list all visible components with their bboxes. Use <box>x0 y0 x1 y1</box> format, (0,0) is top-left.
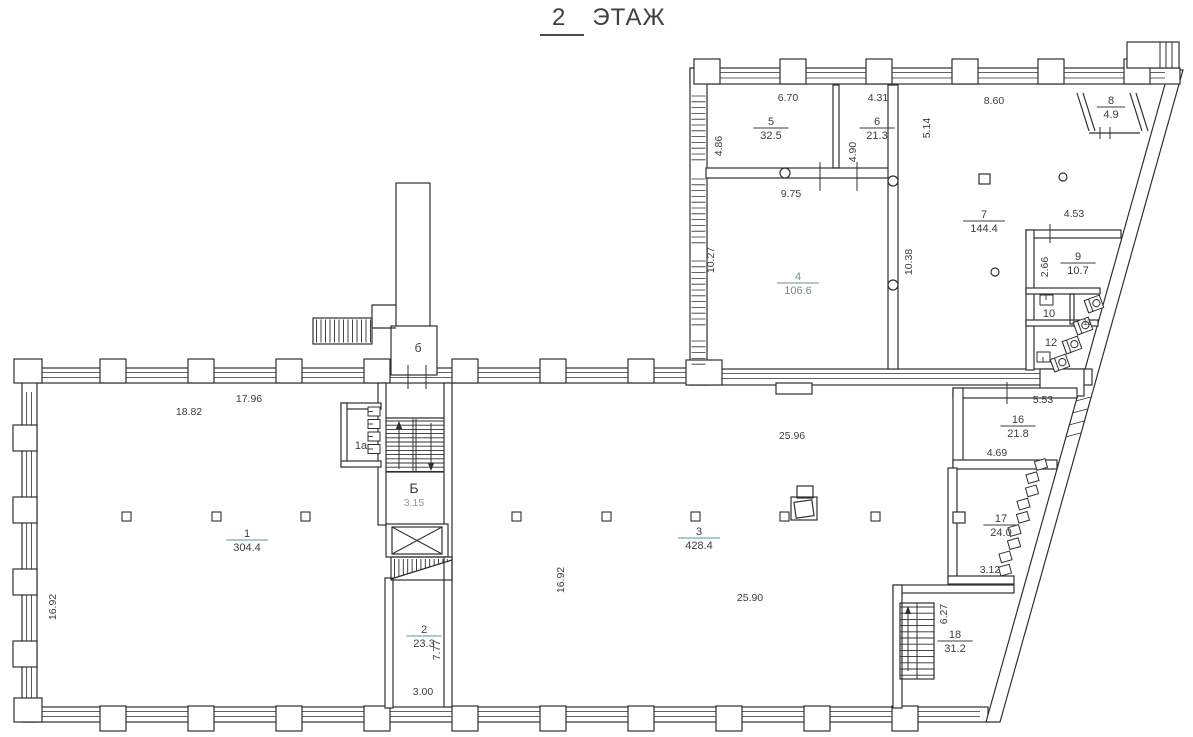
wall-left <box>22 368 37 722</box>
wall-stub <box>953 512 965 523</box>
dimension-label: 4.31 <box>868 92 889 104</box>
wall-left-upper-block <box>690 68 707 385</box>
column-marker <box>780 512 789 521</box>
svg-text:6: 6 <box>874 116 880 128</box>
dimension-label: 4.90 <box>847 142 859 163</box>
column-marker <box>512 512 521 521</box>
dimension-label: 3.12 <box>980 564 1001 576</box>
dimension-label: 16.92 <box>555 567 567 593</box>
svg-text:21.3: 21.3 <box>866 130 887 142</box>
wall-room17-south <box>948 576 1014 584</box>
wall-bottom <box>22 707 988 722</box>
radiator-box <box>1026 472 1039 484</box>
radiator-box <box>999 551 1012 563</box>
column-marker <box>602 512 611 521</box>
zone-label-11: 11 <box>1083 318 1092 327</box>
dimension-label: 25.90 <box>737 592 763 604</box>
room-label-18: 1831.2 <box>937 629 972 655</box>
radiator-box <box>1025 485 1038 497</box>
wall-room9-10 <box>1026 288 1100 294</box>
dimension-label: 7.77 <box>431 640 443 661</box>
roof-block-top-right <box>1127 42 1179 68</box>
dimension-label: 3.00 <box>413 686 434 698</box>
zone-label-Б: Б <box>409 480 418 496</box>
shaft-above-b <box>396 183 430 328</box>
svg-text:24.0: 24.0 <box>990 527 1011 539</box>
floor-plan-drawing: 1304.4223.33428.44106.6532.5621.37144.48… <box>0 0 1193 737</box>
wall-bottom-upper-block <box>690 369 1092 385</box>
radiator-box <box>1016 511 1029 523</box>
dimension-label: 6.27 <box>938 604 950 625</box>
svg-text:10.7: 10.7 <box>1067 265 1088 277</box>
wall-column-circle <box>888 280 898 290</box>
dimension-label: 25.96 <box>779 430 805 442</box>
svg-text:144.4: 144.4 <box>970 223 998 235</box>
floor-plan-page: 2 ЭТАЖ <box>0 0 1193 737</box>
svg-text:21.8: 21.8 <box>1007 428 1028 440</box>
zone-label-10: 10 <box>1043 308 1055 320</box>
room-label-4: 4106.6 <box>777 271 819 297</box>
svg-text:4: 4 <box>795 271 801 283</box>
column-square <box>979 174 990 184</box>
duct-room3 <box>791 486 817 520</box>
dimension-label: 5.53 <box>1033 394 1054 406</box>
toilet-icon <box>1084 295 1103 313</box>
radiator-box <box>1007 538 1020 550</box>
room-label-9: 910.7 <box>1060 251 1095 277</box>
wall-room5-6-south <box>706 168 896 178</box>
dimension-label: 4.53 <box>1064 208 1085 220</box>
room-label-16: 1621.8 <box>1000 414 1035 440</box>
wall-1a-west <box>341 403 347 467</box>
svg-text:3: 3 <box>696 526 702 538</box>
zone-label-б: б <box>415 341 422 355</box>
wall-room18-north <box>893 585 1014 593</box>
svg-text:17: 17 <box>995 513 1007 525</box>
room-label-8: 84.9 <box>1097 95 1125 121</box>
dimension-label: 4.86 <box>713 136 725 157</box>
dimension-label: 3.15 <box>404 497 425 509</box>
svg-text:4.9: 4.9 <box>1103 109 1118 121</box>
svg-text:1: 1 <box>244 528 250 540</box>
zone-label-1а: 1а <box>355 440 368 452</box>
ladder-hatch <box>317 320 371 343</box>
door-ticks <box>820 162 1050 404</box>
stair-treads-central <box>386 421 444 471</box>
svg-text:7: 7 <box>981 209 987 221</box>
wall-top-upper-block <box>690 68 1180 84</box>
svg-text:32.5: 32.5 <box>760 130 781 142</box>
column-marker <box>871 512 880 521</box>
dimension-label: 6.70 <box>778 92 799 104</box>
fire-escape-strip <box>313 318 372 344</box>
wall-room16-west <box>953 388 963 468</box>
svg-text:18: 18 <box>949 629 961 641</box>
wall-room16-north <box>953 388 1077 398</box>
wall-room9-west <box>1026 230 1034 370</box>
svg-text:304.4: 304.4 <box>233 542 261 554</box>
column-marker <box>691 512 700 521</box>
svg-text:106.6: 106.6 <box>784 285 812 297</box>
svg-text:16: 16 <box>1012 414 1024 426</box>
wall-room9-north <box>1026 230 1121 238</box>
dimension-label: 17.96 <box>236 393 262 405</box>
dimension-label: 5.14 <box>921 118 933 139</box>
svg-text:428.4: 428.4 <box>685 540 713 552</box>
svg-text:2: 2 <box>421 624 427 636</box>
column-circle <box>1059 173 1067 181</box>
dimension-label: 9.75 <box>781 188 802 200</box>
wall-column-circle <box>780 168 790 178</box>
dimension-label: 8.60 <box>984 95 1005 107</box>
svg-text:31.2: 31.2 <box>944 643 965 655</box>
room-label-5: 532.5 <box>753 116 788 142</box>
dimension-label: 16.92 <box>47 594 59 620</box>
wall-column-circle <box>888 176 898 186</box>
dimension-label: 18.82 <box>176 406 202 418</box>
room-label-3: 3428.4 <box>678 526 720 552</box>
wall-1a-south <box>341 461 381 467</box>
step-notch <box>372 305 396 328</box>
room-label-7: 7144.4 <box>963 209 1005 235</box>
column-marker <box>122 512 131 521</box>
sink-icon <box>1037 352 1050 362</box>
column-marker <box>301 512 310 521</box>
column-marker <box>212 512 221 521</box>
stair-lower-diagonal <box>391 560 452 579</box>
svg-text:8: 8 <box>1108 95 1114 107</box>
dimension-label: 4.69 <box>987 447 1008 459</box>
zone-label-12: 12 <box>1045 337 1057 349</box>
sink-icon <box>1040 295 1053 305</box>
column-circle <box>991 268 999 276</box>
wall-room5-6-divider <box>833 85 839 168</box>
svg-text:5: 5 <box>768 116 774 128</box>
radiator-box <box>998 564 1011 576</box>
dimension-label: 10.38 <box>903 249 915 275</box>
radiator-box <box>1017 498 1030 510</box>
wall-room2-west <box>385 578 393 708</box>
toilet-icon <box>1062 336 1081 354</box>
svg-text:9: 9 <box>1075 251 1081 263</box>
dimension-label: 2.66 <box>1039 257 1051 278</box>
room-label-1: 1304.4 <box>226 528 268 554</box>
dimension-label: 10.27 <box>705 247 717 273</box>
